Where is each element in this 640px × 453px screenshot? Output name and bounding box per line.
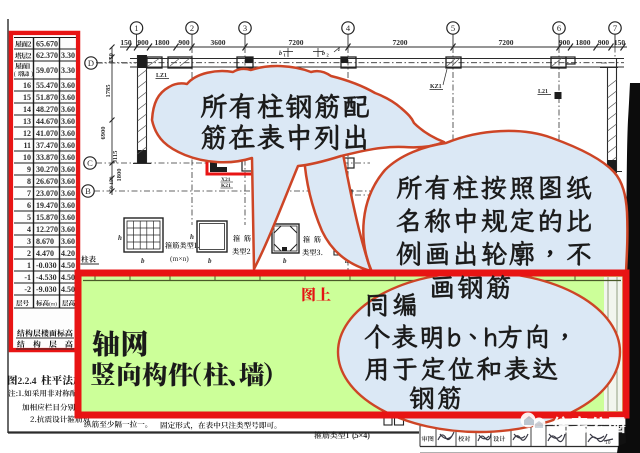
svg-text:3.60: 3.60 (61, 225, 75, 234)
svg-text:b: b (279, 51, 282, 57)
svg-text:7: 7 (27, 189, 31, 198)
svg-text:3: 3 (243, 23, 247, 33)
svg-text:-4.530: -4.530 (36, 273, 57, 282)
svg-text:13: 13 (23, 117, 31, 126)
svg-text:26.670: 26.670 (36, 177, 58, 186)
svg-text:1785: 1785 (105, 84, 112, 98)
svg-text:4.470: 4.470 (36, 249, 54, 258)
svg-text:10: 10 (605, 440, 611, 446)
svg-text:3.60: 3.60 (61, 117, 75, 126)
svg-text:5115: 5115 (112, 150, 119, 163)
svg-text:16: 16 (23, 81, 31, 90)
svg-text:8.670: 8.670 (36, 237, 54, 246)
svg-text:900: 900 (559, 38, 571, 47)
svg-text:-9.030: -9.030 (36, 285, 57, 294)
svg-text:6900: 6900 (100, 127, 107, 140)
svg-text:3600: 3600 (211, 38, 226, 47)
svg-text:55.470: 55.470 (36, 81, 58, 90)
svg-text:1800: 1800 (155, 38, 170, 47)
svg-text:15.870: 15.870 (36, 213, 58, 222)
svg-text:h: h (190, 233, 194, 241)
svg-text:3.30: 3.30 (61, 51, 75, 60)
svg-text:1: 1 (284, 53, 287, 58)
svg-text:4.50: 4.50 (61, 261, 75, 270)
svg-text:23.070: 23.070 (36, 189, 58, 198)
svg-text:3.60: 3.60 (61, 81, 75, 90)
svg-text:4: 4 (27, 225, 31, 234)
svg-text:C: C (87, 158, 93, 168)
svg-text:3.30: 3.30 (61, 66, 75, 75)
svg-text:12: 12 (23, 129, 31, 138)
svg-text:8: 8 (27, 177, 31, 186)
svg-text:3.60: 3.60 (61, 213, 75, 222)
svg-text:(m): (m) (49, 301, 57, 308)
svg-text:15: 15 (23, 93, 31, 102)
svg-text:B: B (85, 186, 91, 196)
svg-text:3.60: 3.60 (61, 153, 75, 162)
svg-text:7200: 7200 (499, 38, 514, 47)
svg-text:11: 11 (23, 141, 31, 150)
svg-text:1800: 1800 (116, 169, 123, 182)
svg-text:6: 6 (557, 23, 561, 33)
svg-text:51.870: 51.870 (36, 93, 58, 102)
svg-text:19.470: 19.470 (36, 201, 58, 210)
svg-text:2.2.4: 2.2.4 (18, 377, 37, 387)
svg-text:(5×4): (5×4) (352, 431, 370, 440)
svg-text:150: 150 (108, 53, 115, 63)
svg-text:h: h (118, 234, 122, 242)
svg-text:5: 5 (27, 213, 31, 222)
svg-text:1: 1 (134, 23, 138, 33)
svg-text:3.60: 3.60 (61, 129, 75, 138)
svg-text:b: b (208, 257, 212, 265)
svg-text:59.070: 59.070 (36, 66, 58, 75)
svg-text:12.270: 12.270 (36, 225, 58, 234)
svg-text:2: 2 (27, 249, 31, 258)
svg-text:48.270: 48.270 (36, 105, 58, 114)
svg-text:6: 6 (27, 201, 31, 210)
svg-text:3.60: 3.60 (61, 165, 75, 174)
svg-text:44.670: 44.670 (36, 117, 58, 126)
svg-text:z: z (337, 48, 340, 53)
svg-text:37.470: 37.470 (36, 141, 58, 150)
svg-text:3: 3 (27, 237, 31, 246)
svg-text:3.60: 3.60 (61, 93, 75, 102)
svg-text:7: 7 (613, 23, 617, 33)
svg-text:5: 5 (451, 23, 455, 33)
svg-text:7200: 7200 (393, 38, 408, 47)
svg-text:1: 1 (27, 261, 31, 270)
svg-text:50 150: 50 150 (109, 176, 115, 191)
svg-text:b: b (283, 257, 287, 265)
svg-text:9: 9 (27, 165, 31, 174)
svg-text:4.50: 4.50 (61, 285, 75, 294)
svg-text:41.070: 41.070 (36, 129, 58, 138)
svg-text:3.60: 3.60 (61, 237, 75, 246)
svg-text:D: D (88, 58, 94, 68)
svg-text:900: 900 (178, 38, 190, 47)
svg-text:3.60: 3.60 (61, 141, 75, 150)
svg-text:62.370: 62.370 (36, 51, 58, 60)
svg-text:65.670: 65.670 (36, 40, 58, 49)
svg-text:150: 150 (614, 38, 626, 47)
svg-text:3.60: 3.60 (61, 177, 75, 186)
svg-text:4.20: 4.20 (61, 249, 75, 258)
svg-text:900: 900 (598, 38, 610, 47)
svg-text:30.270: 30.270 (36, 165, 58, 174)
svg-text:14: 14 (23, 105, 31, 114)
svg-text:2: 2 (190, 23, 194, 33)
svg-text:3.60: 3.60 (61, 105, 75, 114)
svg-text:3.60: 3.60 (61, 189, 75, 198)
svg-text:33.870: 33.870 (36, 153, 58, 162)
svg-text:3.60: 3.60 (61, 201, 75, 210)
svg-text:150: 150 (120, 38, 132, 47)
svg-text:(m×n): (m×n) (170, 254, 189, 263)
svg-text:4.50: 4.50 (61, 273, 75, 282)
svg-text:1800: 1800 (576, 38, 591, 47)
svg-text:7200: 7200 (289, 38, 304, 47)
svg-text:10: 10 (23, 153, 31, 162)
svg-text:b: b (322, 51, 325, 57)
svg-text:900: 900 (137, 38, 149, 47)
svg-text:-2: -2 (24, 285, 31, 294)
svg-text:-1: -1 (24, 273, 31, 282)
svg-text:-0.030: -0.030 (36, 261, 57, 270)
svg-text:2: 2 (327, 53, 330, 58)
svg-text:b: b (141, 257, 145, 265)
